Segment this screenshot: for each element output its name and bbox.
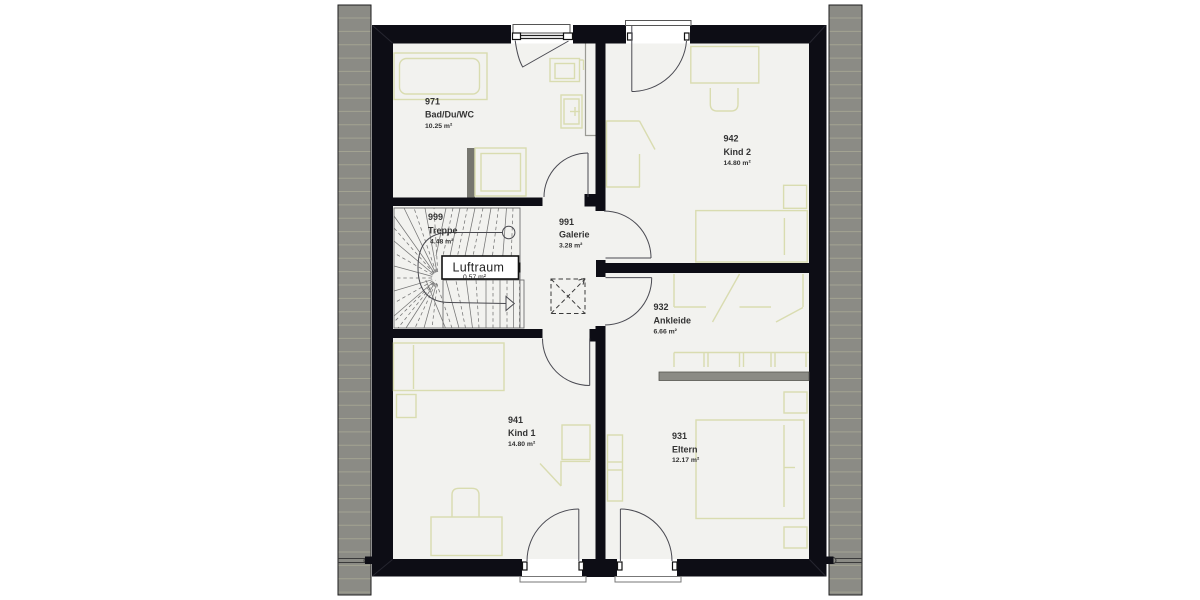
svg-text:Treppe: Treppe — [428, 226, 458, 236]
svg-text:Galerie: Galerie — [559, 230, 590, 240]
svg-text:Kind 2: Kind 2 — [724, 147, 752, 157]
svg-text:941: 941 — [508, 415, 523, 425]
svg-text:4.48 m²: 4.48 m² — [430, 239, 454, 246]
svg-text:6.66 m²: 6.66 m² — [654, 329, 678, 336]
svg-text:12.17 m²: 12.17 m² — [672, 457, 700, 464]
svg-text:14.80 m²: 14.80 m² — [508, 441, 536, 448]
svg-text:3.28 m²: 3.28 m² — [559, 243, 583, 250]
svg-text:0.57 m²: 0.57 m² — [463, 274, 487, 281]
svg-text:10.25 m²: 10.25 m² — [425, 123, 453, 130]
svg-text:932: 932 — [654, 302, 669, 312]
svg-text:Ankleide: Ankleide — [654, 316, 692, 326]
svg-text:Eltern: Eltern — [672, 445, 698, 455]
svg-text:Luftraum: Luftraum — [453, 261, 505, 275]
svg-text:14.80 m²: 14.80 m² — [724, 160, 752, 167]
svg-text:Kind 1: Kind 1 — [508, 428, 536, 438]
svg-text:942: 942 — [724, 134, 739, 144]
svg-text:Bad/Du/WC: Bad/Du/WC — [425, 110, 474, 120]
svg-text:971: 971 — [425, 97, 440, 107]
svg-text:999: 999 — [428, 212, 443, 222]
svg-text:991: 991 — [559, 217, 574, 227]
svg-text:931: 931 — [672, 431, 687, 441]
